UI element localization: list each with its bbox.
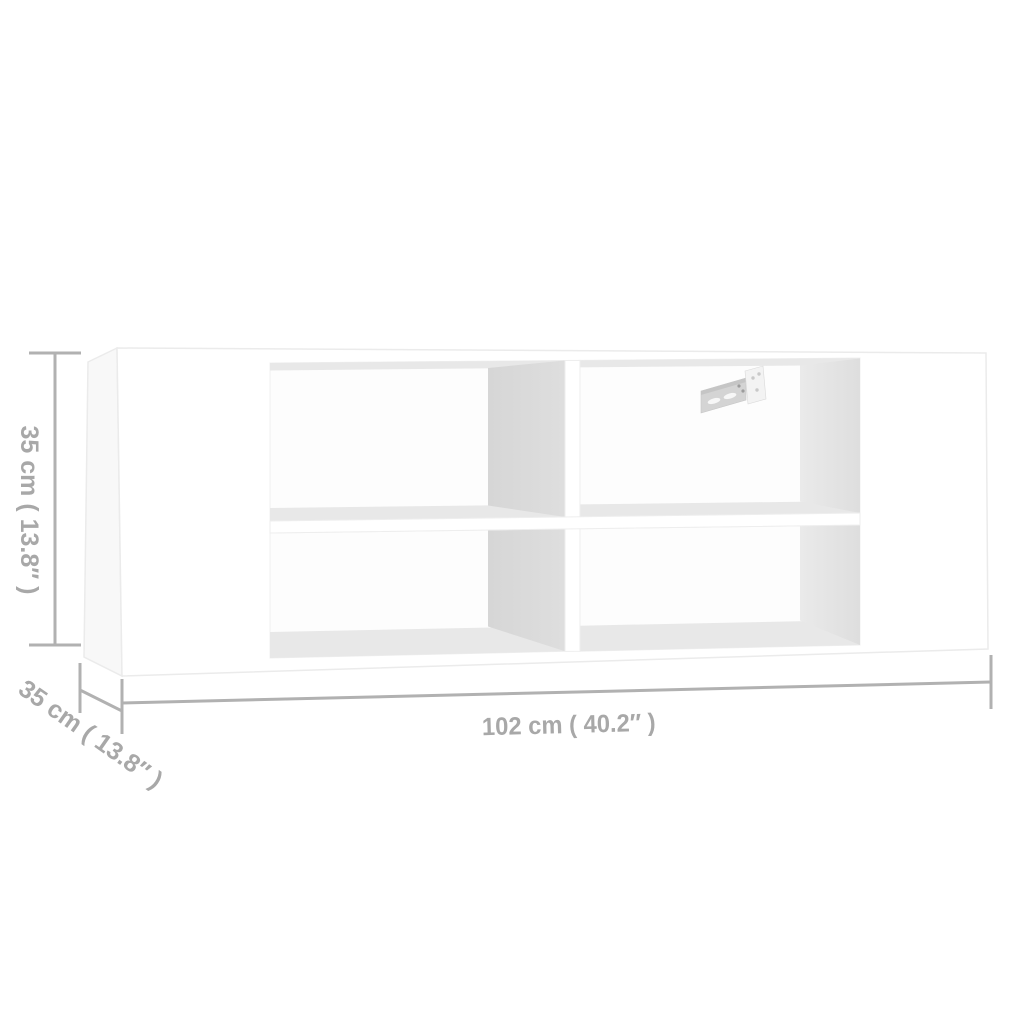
cabinet-illustration: [84, 348, 988, 676]
depth-dimension-label: 35 cm ( 13.8″ ): [13, 675, 168, 795]
bracket-hole: [755, 388, 758, 391]
middle-divider: [488, 360, 580, 651]
width-dimension-line: [122, 682, 991, 703]
depth-dimension-line: [80, 690, 122, 711]
upper-right-compartment: [580, 358, 860, 517]
diagram-canvas: 35 cm ( 13.8″ ) 35 cm ( 13.8″ ) 102 cm (…: [0, 0, 1024, 1024]
divider-front-edge: [565, 360, 580, 651]
width-dimension-label: 102 cm ( 40.2″ ): [482, 709, 656, 741]
lower-right-compartment: [580, 519, 860, 651]
left-side-panel: [84, 348, 122, 676]
depth-dimension: 35 cm ( 13.8″ ): [13, 663, 168, 794]
bracket-upright-plate: [745, 366, 766, 404]
divider-side-shade-upper: [488, 361, 565, 518]
height-dimension: 35 cm ( 13.8″ ): [15, 353, 81, 645]
product-dimension-diagram: 35 cm ( 13.8″ ) 35 cm ( 13.8″ ) 102 cm (…: [0, 0, 1024, 1024]
height-dimension-label: 35 cm ( 13.8″ ): [15, 425, 43, 594]
right-wall-inner-shade: [800, 359, 860, 514]
bracket-screw: [741, 389, 744, 392]
bracket-hole: [757, 372, 760, 375]
bracket-hole: [751, 376, 754, 379]
bracket-screw: [737, 384, 740, 387]
